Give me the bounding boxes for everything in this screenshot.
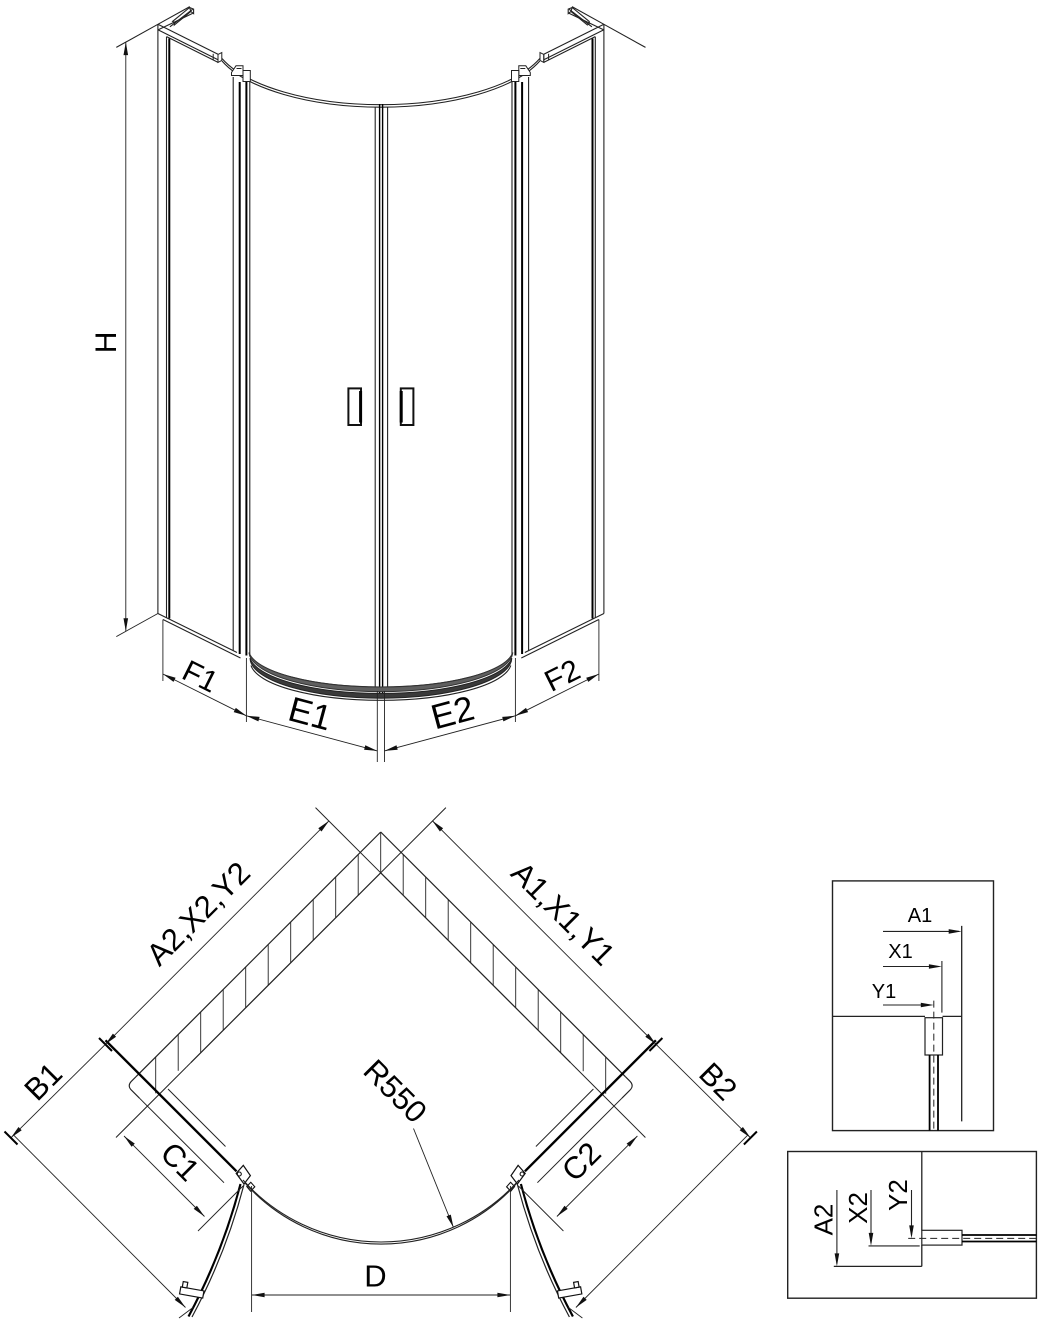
svg-text:H: H [90,332,123,354]
svg-text:Y1: Y1 [872,981,896,1003]
svg-text:A1: A1 [908,905,932,927]
svg-text:X1: X1 [888,941,912,963]
svg-text:X2: X2 [843,1192,873,1224]
svg-text:A2: A2 [809,1204,839,1236]
svg-text:D: D [364,1259,386,1294]
svg-text:Y2: Y2 [883,1179,913,1211]
